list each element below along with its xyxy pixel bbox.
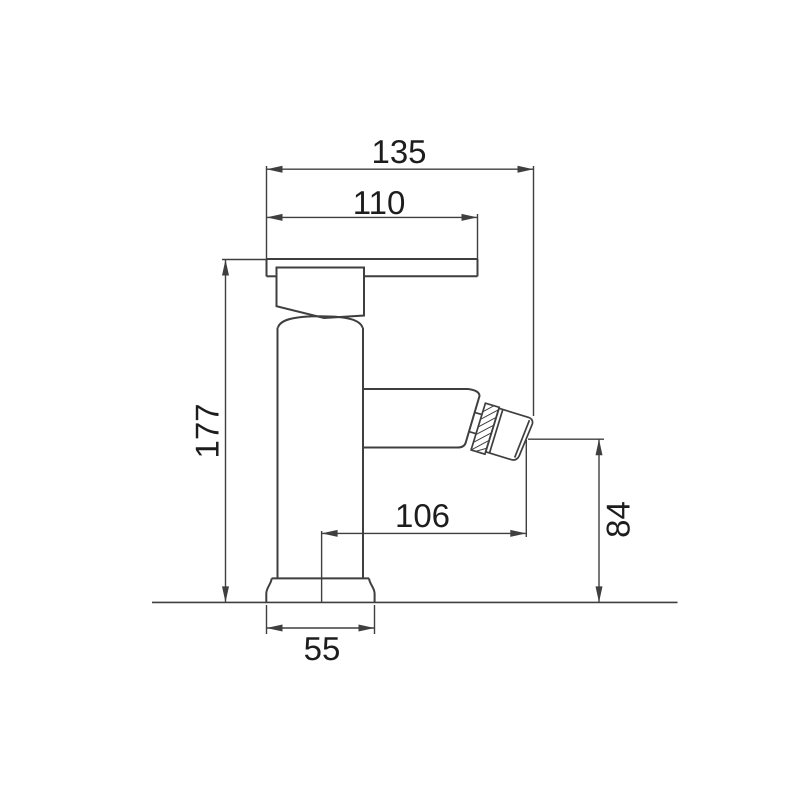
svg-text:110: 110 xyxy=(353,184,406,221)
svg-text:177: 177 xyxy=(189,403,226,458)
svg-text:84: 84 xyxy=(600,501,637,538)
svg-text:55: 55 xyxy=(304,630,341,667)
svg-text:135: 135 xyxy=(371,133,426,170)
svg-text:106: 106 xyxy=(395,497,450,534)
